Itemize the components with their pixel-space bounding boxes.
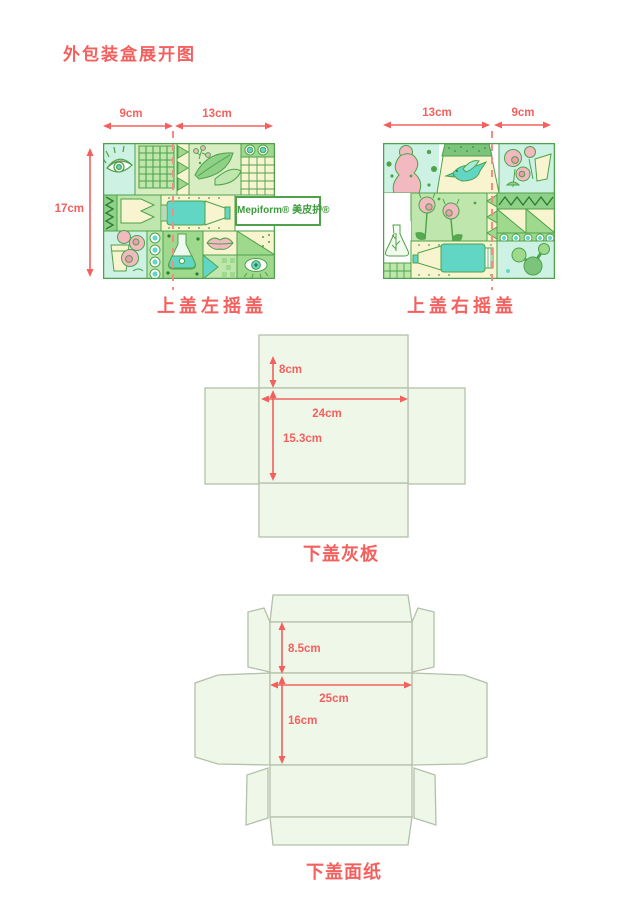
brand-label: Mepiform® 美皮护® bbox=[235, 196, 321, 226]
caption-grey-board: 下盖灰板 bbox=[261, 540, 421, 566]
corner-tab-bottom-left bbox=[246, 768, 268, 825]
dim-13cm: 13cm bbox=[175, 108, 273, 130]
dim-9cm: 9cm bbox=[103, 108, 173, 130]
svg-text:17cm: 17cm bbox=[55, 203, 84, 215]
svg-text:13cm: 13cm bbox=[202, 108, 231, 120]
glue-flap-top bbox=[270, 595, 412, 622]
flap-left bbox=[195, 673, 270, 765]
flap-bottom bbox=[259, 483, 408, 537]
flap-left bbox=[205, 388, 259, 484]
page-title: 外包装盒展开图 bbox=[63, 40, 196, 65]
svg-text:9cm: 9cm bbox=[119, 108, 142, 120]
svg-text:25cm: 25cm bbox=[319, 693, 348, 705]
glue-flap-bottom bbox=[270, 817, 412, 845]
panel-center bbox=[259, 388, 408, 483]
svg-text:24cm: 24cm bbox=[312, 408, 341, 420]
flap-right bbox=[412, 673, 487, 765]
face-paper-dieline: 8.5cm 25cm 16cm bbox=[190, 592, 490, 850]
svg-text:9cm: 9cm bbox=[511, 107, 534, 119]
corner-tab-top-right bbox=[412, 608, 434, 672]
svg-text:16cm: 16cm bbox=[288, 715, 317, 727]
flap-top bbox=[259, 335, 408, 388]
dim-9cm: 9cm bbox=[494, 107, 551, 129]
svg-text:8.5cm: 8.5cm bbox=[288, 643, 321, 655]
caption-face-paper: 下盖面纸 bbox=[264, 858, 424, 884]
grey-board-dieline: 8cm 24cm 15.3cm bbox=[195, 330, 475, 542]
svg-text:8cm: 8cm bbox=[279, 364, 302, 376]
lid-right-dimensions: 13cm 9cm bbox=[360, 98, 590, 313]
svg-text:15.3cm: 15.3cm bbox=[283, 433, 322, 445]
corner-tab-bottom-right bbox=[414, 768, 436, 825]
corner-tab-top-left bbox=[248, 608, 270, 672]
flap-right bbox=[408, 388, 465, 484]
dim-13cm: 13cm bbox=[383, 107, 490, 129]
svg-text:13cm: 13cm bbox=[422, 107, 451, 119]
flap-bottom bbox=[270, 765, 412, 817]
dim-17cm: 17cm bbox=[55, 148, 94, 277]
